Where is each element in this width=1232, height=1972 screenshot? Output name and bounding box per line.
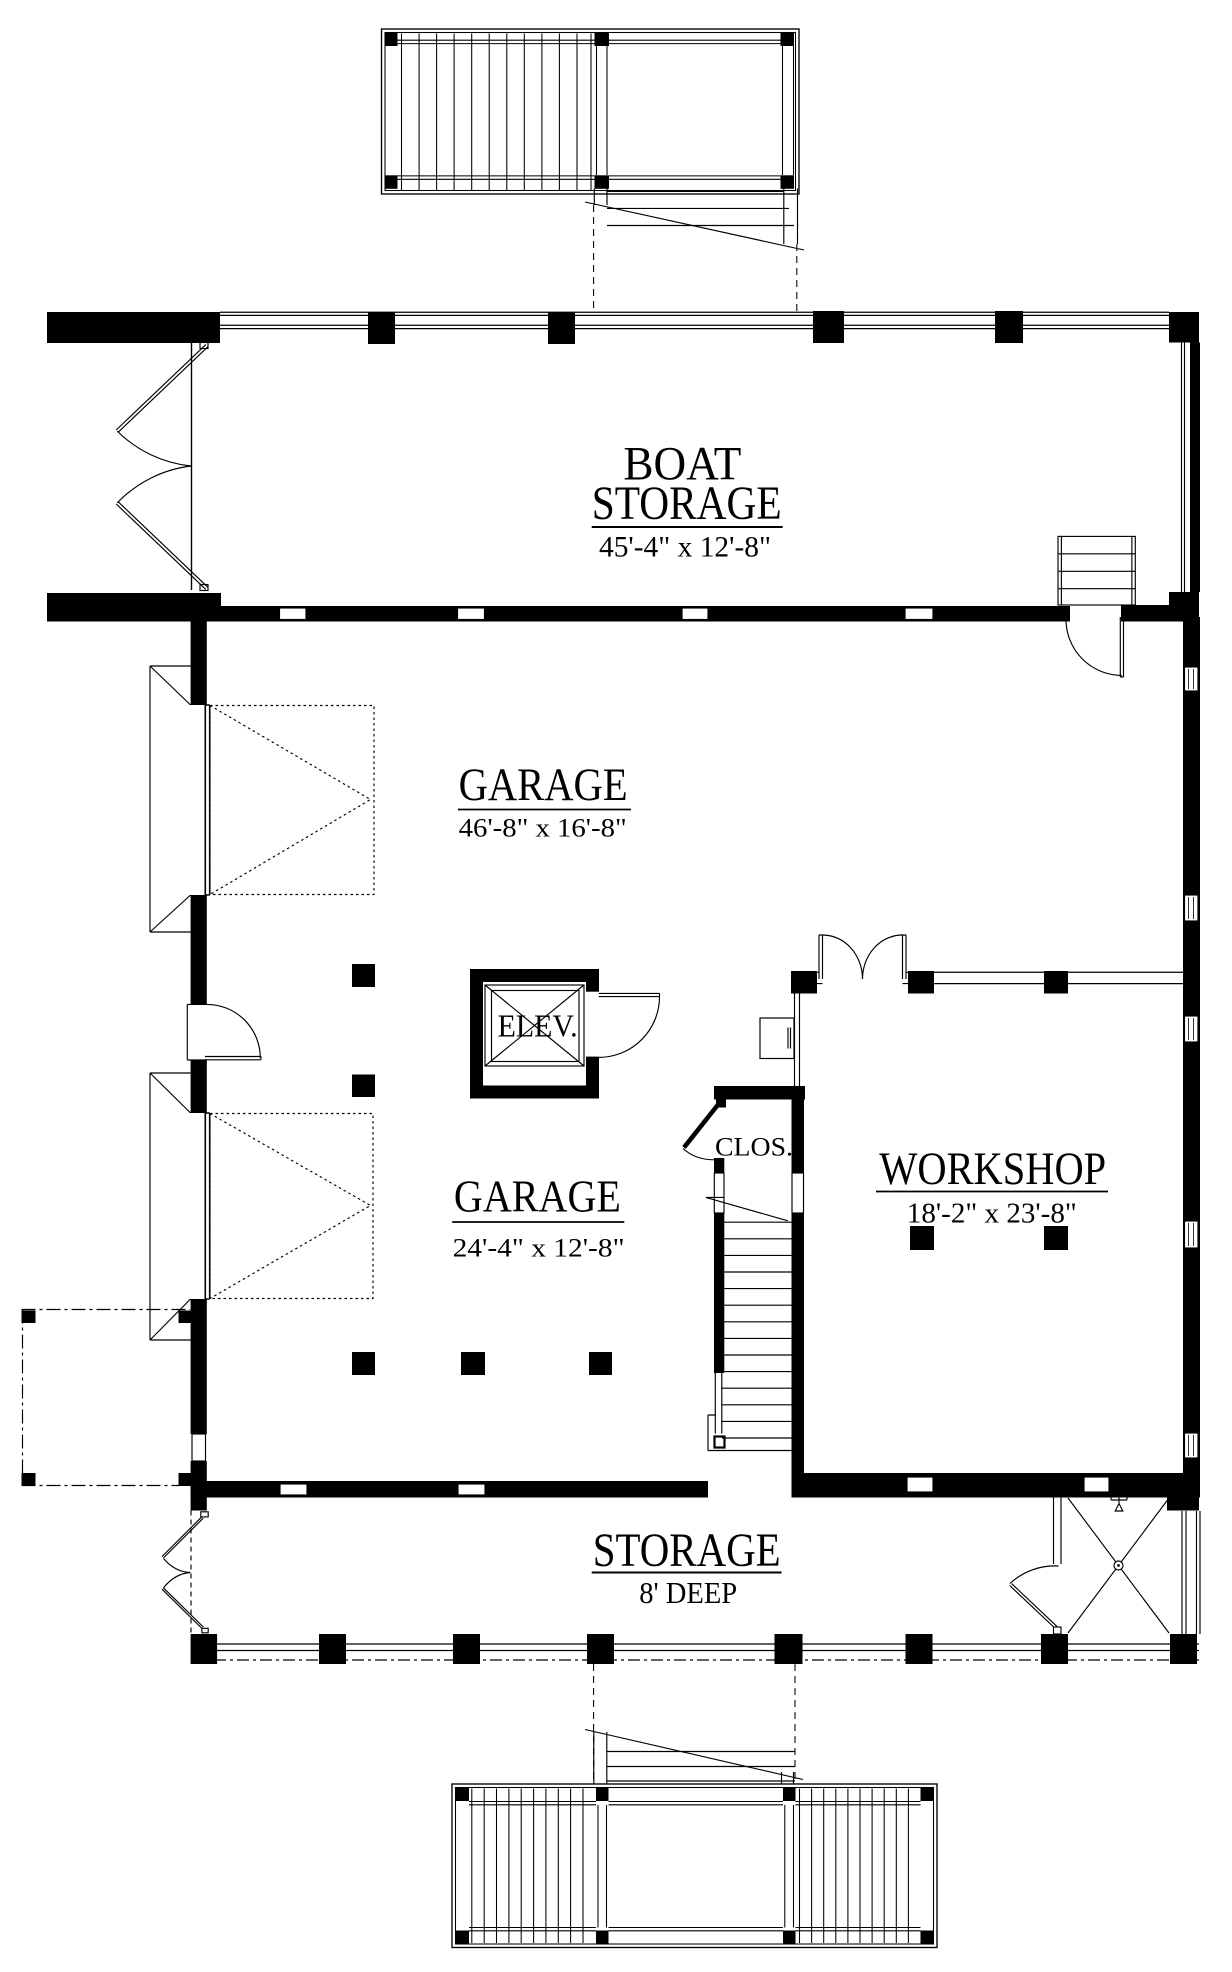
svg-text:WORKSHOP: WORKSHOP [879, 1143, 1106, 1195]
svg-text:46'-8" x 16'-8": 46'-8" x 16'-8" [459, 814, 627, 843]
svg-text:45'-4" x 12'-8": 45'-4" x 12'-8" [599, 531, 771, 564]
svg-text:24'-4" x 12'-8": 24'-4" x 12'-8" [453, 1234, 625, 1263]
svg-text:CLOS.: CLOS. [715, 1133, 793, 1162]
svg-text:STORAGE: STORAGE [592, 477, 782, 530]
svg-text:GARAGE: GARAGE [459, 759, 628, 811]
svg-text:8' DEEP: 8' DEEP [639, 1575, 737, 1610]
svg-text:STORAGE: STORAGE [593, 1524, 781, 1577]
svg-text:ELEV.: ELEV. [498, 1008, 578, 1044]
svg-text:18'-2" x 23'-8": 18'-2" x 23'-8" [907, 1198, 1077, 1230]
svg-text:GARAGE: GARAGE [454, 1170, 621, 1221]
